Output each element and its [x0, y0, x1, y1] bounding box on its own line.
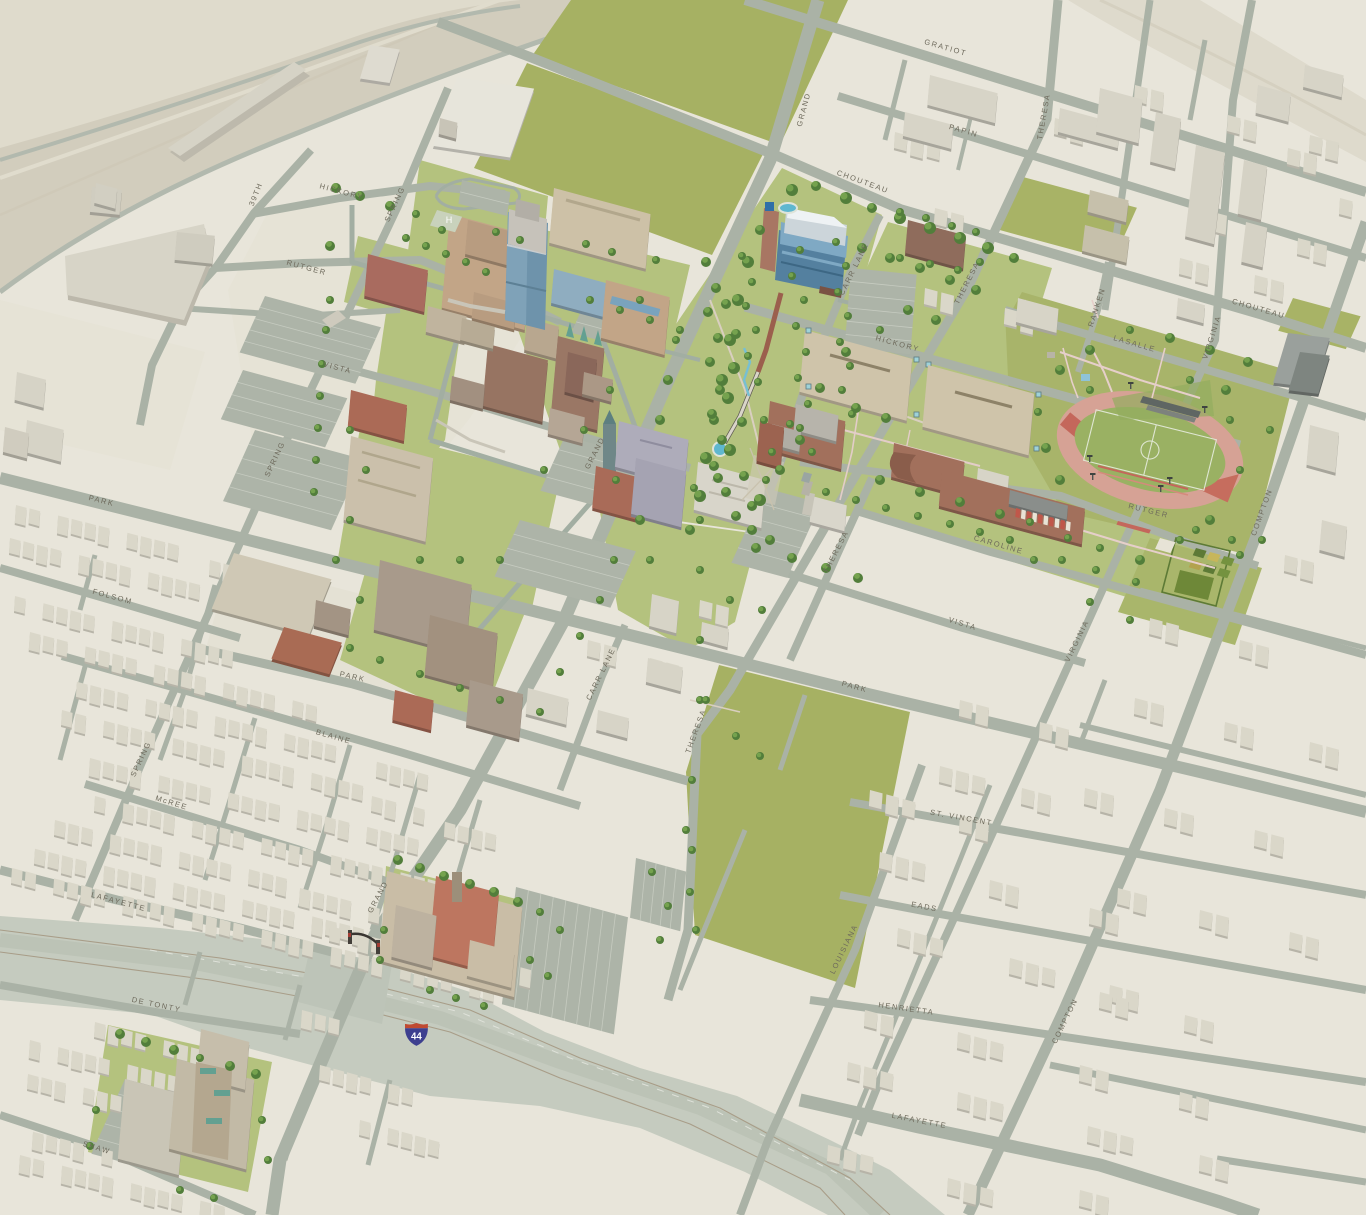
svg-text:44: 44 — [411, 1032, 422, 1043]
svg-text:H: H — [446, 215, 453, 225]
